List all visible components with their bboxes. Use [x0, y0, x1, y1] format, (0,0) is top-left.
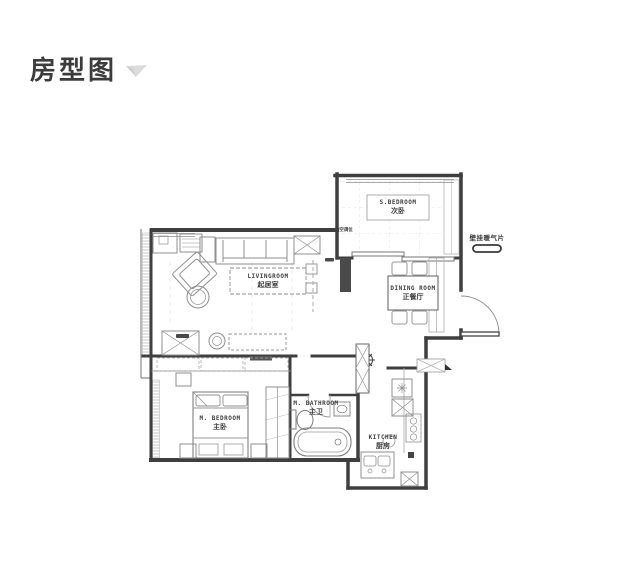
bed — [193, 392, 248, 458]
wall-block — [340, 258, 351, 292]
ac-position-annotation: 空调位 — [339, 227, 353, 233]
nightstand — [180, 444, 196, 458]
dining-chair — [412, 311, 427, 324]
s-bedroom-label-box — [367, 195, 429, 220]
tiny-annotation-marks — [176, 258, 334, 338]
plant — [209, 333, 225, 349]
bathroom-fixtures — [289, 395, 351, 456]
bathroom-sink — [334, 402, 350, 416]
kitchen-fixtures — [361, 368, 421, 486]
nightstand — [251, 444, 267, 458]
dining-chair — [392, 262, 407, 275]
pillow — [223, 395, 247, 406]
armchair — [172, 251, 217, 296]
nightstand — [176, 373, 191, 386]
duct-shaft — [356, 344, 369, 393]
dining-furniture — [388, 262, 438, 324]
stove — [406, 414, 421, 442]
radiator-symbol — [473, 245, 501, 252]
living-room-furniture — [153, 233, 320, 361]
ceiling-grid-lines — [170, 262, 292, 330]
dining-chair — [392, 311, 407, 324]
dining-chair — [412, 262, 427, 275]
livingroom-label-box — [230, 268, 306, 294]
pillow — [196, 395, 220, 406]
tv-console — [229, 334, 286, 350]
dining-table — [388, 276, 438, 310]
radiator-annotation: 壁挂暖气片 — [470, 232, 505, 242]
bedroom-furniture — [157, 358, 289, 458]
sofa — [216, 238, 294, 264]
toilet — [297, 411, 313, 430]
floorplan-page: 房型图 — [0, 0, 640, 568]
floorplan-drawing — [0, 0, 640, 568]
